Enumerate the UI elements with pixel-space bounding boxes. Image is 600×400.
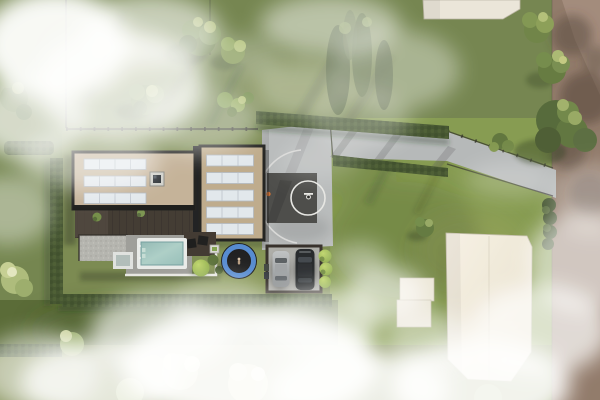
- scene-svg: [0, 0, 600, 400]
- clouds: [0, 0, 600, 400]
- warm-haze: [0, 0, 600, 400]
- aerial-render: [0, 0, 600, 400]
